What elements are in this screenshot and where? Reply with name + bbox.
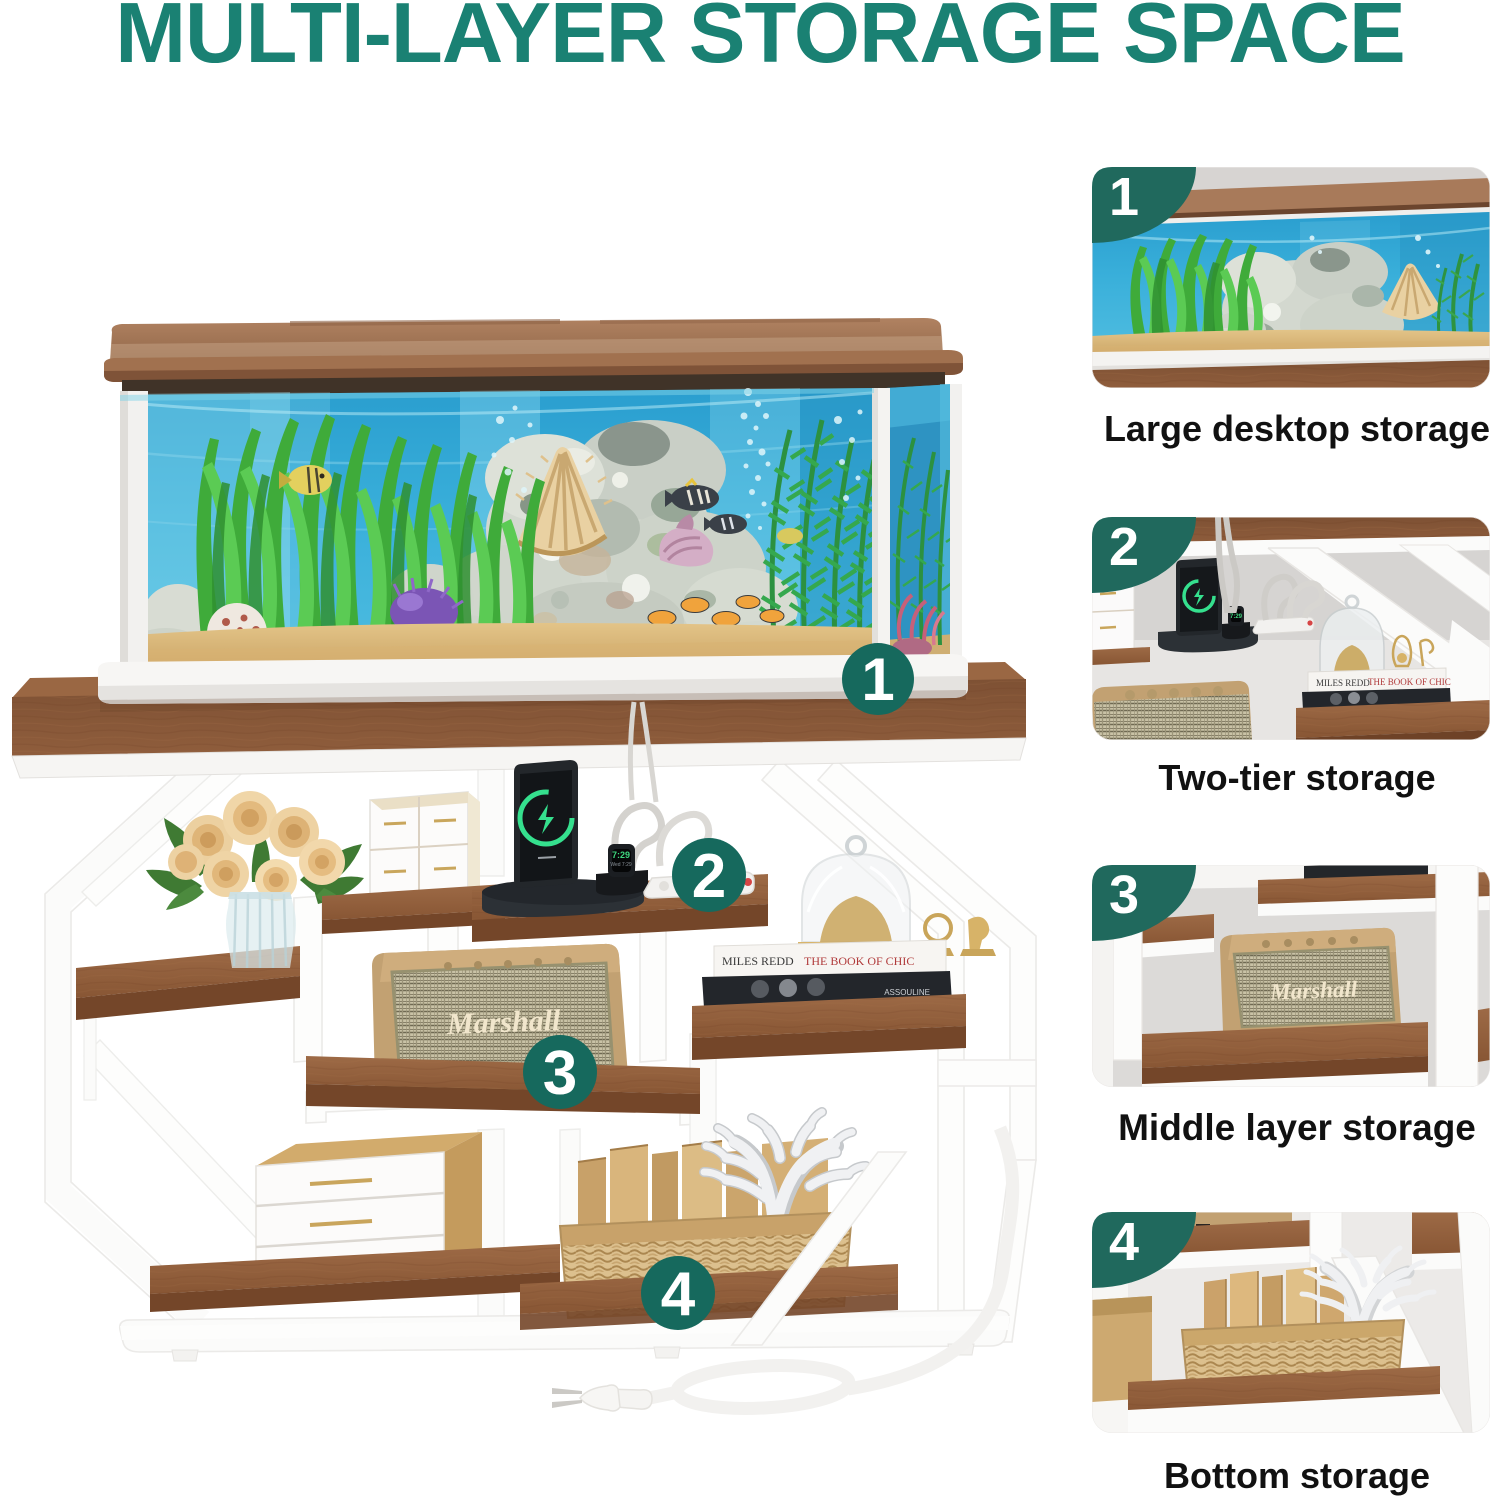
svg-text:Two-tier storage: Two-tier storage bbox=[1158, 757, 1435, 798]
svg-text:Middle layer storage: Middle layer storage bbox=[1118, 1107, 1476, 1148]
svg-text:7:29: 7:29 bbox=[612, 850, 630, 860]
svg-text:Bottom storage: Bottom storage bbox=[1164, 1455, 1430, 1496]
svg-text:THE BOOK OF CHIC: THE BOOK OF CHIC bbox=[1368, 677, 1451, 687]
svg-text:3: 3 bbox=[1109, 865, 1139, 925]
svg-text:1: 1 bbox=[861, 646, 894, 713]
svg-text:4: 4 bbox=[1109, 1212, 1139, 1272]
svg-text:Wed 7:29: Wed 7:29 bbox=[610, 862, 632, 868]
svg-text:MILES REDD: MILES REDD bbox=[722, 954, 794, 968]
svg-text:Marshall: Marshall bbox=[445, 1004, 561, 1041]
svg-text:Marshall: Marshall bbox=[1269, 976, 1358, 1004]
svg-text:Large desktop storage: Large desktop storage bbox=[1104, 408, 1490, 449]
svg-text:4: 4 bbox=[661, 1260, 696, 1329]
svg-text:MULTI-LAYER STORAGE SPACE: MULTI-LAYER STORAGE SPACE bbox=[115, 0, 1404, 81]
svg-text:ASSOULINE: ASSOULINE bbox=[884, 988, 930, 997]
svg-text:2: 2 bbox=[692, 842, 726, 911]
svg-text:7:29: 7:29 bbox=[1230, 614, 1243, 620]
svg-text:2: 2 bbox=[1109, 517, 1139, 577]
svg-text:MILES REDD: MILES REDD bbox=[1316, 678, 1370, 688]
svg-text:1: 1 bbox=[1109, 167, 1139, 227]
svg-text:3: 3 bbox=[543, 1039, 577, 1108]
svg-text:THE BOOK OF CHIC: THE BOOK OF CHIC bbox=[804, 954, 914, 968]
